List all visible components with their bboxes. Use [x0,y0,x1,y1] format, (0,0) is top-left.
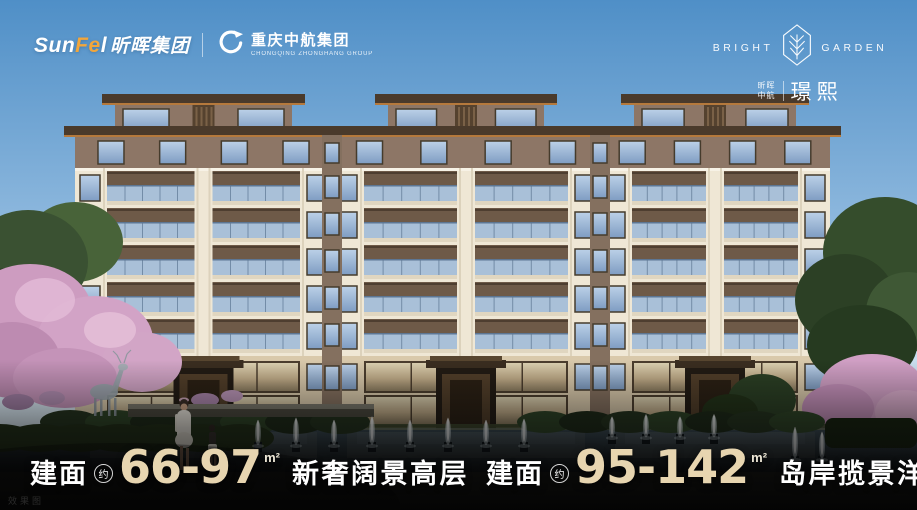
tagline: 建面 约 66-97 m² 新奢阔景高层 建面 约 95-142 m² 岛岸揽景… [30,440,917,494]
tagline-segment-highrise: 建面 约 66-97 m² 新奢阔景高层 [30,440,469,494]
zhonghang-logo: 重庆中航集团 CHONGQING ZHONGHANG GROUP [215,28,373,61]
area-range: 95-142 [575,440,748,494]
project-en-right: GARDEN [821,42,887,54]
area-unit: m² [751,450,767,465]
sunfel-wordmark-accent: Fe [75,34,101,57]
approx-badge: 约 [550,464,569,483]
poster: SunFel昕晖集团 重庆中航集团 CHONGQING ZHONGHANG GR… [0,0,917,510]
project-logo-divider [783,81,784,101]
sunfel-cn-name: 昕晖集团 [110,36,190,57]
area-label: 建面 [486,452,544,491]
render-disclaimer-watermark: 效果图 [8,494,44,507]
zhonghang-en-name: CHONGQING ZHONGHANG GROUP [251,51,373,57]
sunfel-wordmark-pre: Sun [34,34,75,57]
product-desc: 岛岸揽景洋房 [779,452,917,491]
area-label: 建面 [30,452,88,491]
area-range: 66-97 [119,440,261,494]
project-cn-name: 璟熙 [791,76,843,106]
corporate-logos: SunFel昕晖集团 重庆中航集团 CHONGQING ZHONGHANG GR… [34,28,373,61]
approx-badge: 约 [94,464,113,483]
project-en-left: BRIGHT [713,42,774,54]
sunfel-logo: SunFel昕晖集团 [34,31,190,58]
project-sub-line1: 昕晖 [758,81,776,90]
project-sub-cn: 昕晖 中航 [758,81,776,100]
zhonghang-cn-name: 重庆中航集团 [251,33,373,48]
product-desc: 新奢阔景高层 [292,452,469,491]
hexagon-tree-emblem-icon [782,24,812,71]
project-logo: BRIGHT GARDEN 昕晖 中航 璟熙 [705,24,895,106]
area-unit: m² [264,450,280,465]
tagline-segment-flats: 建面 约 95-142 m² 岛岸揽景洋房 [486,440,917,494]
swoosh-ring-icon [215,28,243,61]
project-sub-line2: 中航 [758,91,776,100]
logo-divider [202,33,203,57]
sunfel-wordmark-post: l [101,34,107,57]
